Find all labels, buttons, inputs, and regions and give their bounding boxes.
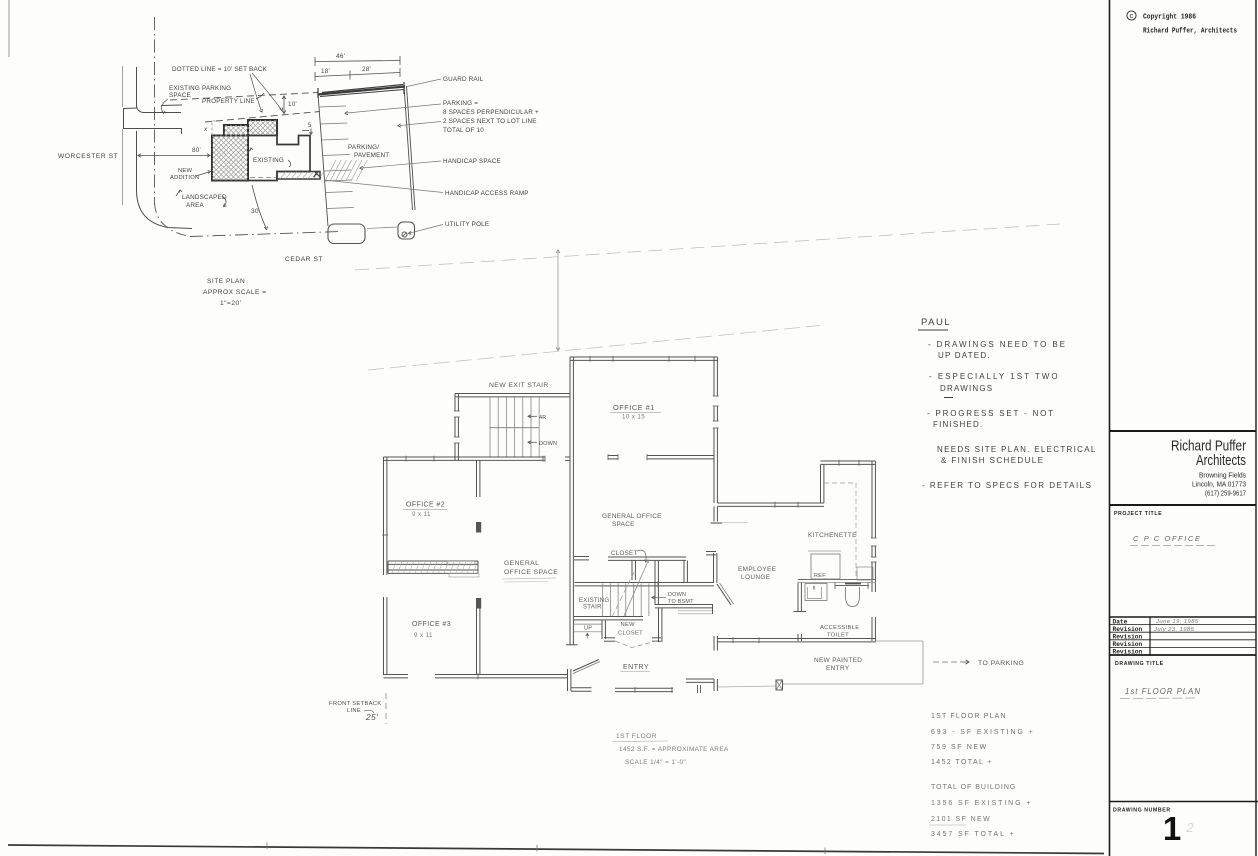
svg-text:c: c — [1129, 13, 1133, 21]
svg-text:2 SPACES NEXT TO LOT LINE: 2 SPACES NEXT TO LOT LINE — [443, 118, 537, 125]
svg-text:1"=20': 1"=20' — [220, 300, 241, 307]
svg-text:1: 1 — [1163, 810, 1181, 847]
svg-text:- REFER TO SPECS FOR DETAILS: - REFER TO SPECS FOR DETAILS — [922, 481, 1092, 490]
svg-text:June 19, 1985: June 19, 1985 — [1155, 619, 1199, 625]
svg-text:693 - SF EXISTING +: 693 - SF EXISTING + — [931, 729, 1035, 736]
svg-text:1ST FLOOR PLAN: 1ST FLOOR PLAN — [931, 713, 1007, 720]
svg-text:UTILITY POLE: UTILITY POLE — [445, 221, 489, 228]
svg-text:1452 S.F. = APPROXIMATE AREA: 1452 S.F. = APPROXIMATE AREA — [619, 746, 729, 753]
svg-text:July 23, 1985: July 23, 1985 — [1153, 627, 1195, 633]
svg-text:ENTRY: ENTRY — [623, 664, 649, 671]
svg-text:759 SF NEW: 759 SF NEW — [931, 744, 988, 751]
svg-text:APPROX SCALE =: APPROX SCALE = — [203, 289, 267, 296]
svg-text:Revision: Revision — [1113, 626, 1143, 633]
svg-text:1ST FLOOR: 1ST FLOOR — [616, 733, 657, 740]
svg-text:TOILET: TOILET — [827, 633, 849, 639]
svg-text:NEW EXIT STAIR: NEW EXIT STAIR — [489, 382, 549, 389]
svg-text:UP: UP — [584, 626, 592, 632]
svg-text:3457 SF TOTAL +: 3457 SF TOTAL + — [931, 831, 1015, 838]
svg-text:HANDICAP SPACE: HANDICAP SPACE — [443, 158, 501, 165]
svg-text:- DRAWINGS NEED TO BE: - DRAWINGS NEED TO BE — [928, 340, 1067, 349]
svg-text:46': 46' — [336, 53, 345, 60]
svg-text:PARKING =: PARKING = — [443, 100, 478, 107]
svg-text:UP DATED.: UP DATED. — [938, 351, 991, 360]
svg-text:25': 25' — [365, 712, 378, 722]
svg-text:EXISTING: EXISTING — [579, 598, 609, 604]
svg-text:OFFICE #2: OFFICE #2 — [406, 502, 445, 509]
svg-text:CLOSET: CLOSET — [618, 631, 643, 637]
svg-text:Richard Puffer, Architects: Richard Puffer, Architects — [1143, 28, 1237, 36]
svg-text:FRONT SETBACK: FRONT SETBACK — [329, 701, 381, 707]
svg-text:(617) 259-9617: (617) 259-9617 — [1205, 489, 1246, 498]
svg-text:OFFICE #1: OFFICE #1 — [613, 403, 655, 412]
svg-text:AREA: AREA — [186, 202, 205, 209]
svg-text:TOTAL OF 10: TOTAL OF 10 — [443, 127, 484, 134]
svg-text:TOTAL OF BUILDING: TOTAL OF BUILDING — [931, 784, 1016, 791]
svg-text:- PROGRESS SET - NOT: - PROGRESS SET - NOT — [927, 409, 1055, 418]
svg-text:SPACE: SPACE — [612, 521, 635, 528]
svg-text:9 x 11: 9 x 11 — [414, 632, 433, 639]
svg-text:DOWN: DOWN — [668, 592, 686, 598]
svg-text:EXISTING: EXISTING — [253, 157, 284, 164]
svg-text:18': 18' — [321, 68, 330, 75]
svg-text:9 x 11: 9 x 11 — [412, 511, 431, 518]
svg-text:Browning Fields: Browning Fields — [1199, 471, 1246, 480]
svg-text:& FINISH SCHEDULE: & FINISH SCHEDULE — [941, 456, 1044, 465]
svg-text:TO PARKING: TO PARKING — [978, 660, 1024, 667]
svg-text:2101 SF NEW: 2101 SF NEW — [931, 816, 991, 823]
svg-text:REF: REF — [814, 573, 826, 579]
svg-text:ADDITION: ADDITION — [170, 175, 199, 181]
svg-text:PROPERTY LINE: PROPERTY LINE — [202, 98, 255, 105]
svg-text:Revision: Revision — [1113, 634, 1143, 641]
svg-text:30: 30 — [251, 208, 259, 215]
svg-text:DOTTED LINE = 10' SET BACK: DOTTED LINE = 10' SET BACK — [172, 66, 268, 73]
svg-text:DRAWING TITLE: DRAWING TITLE — [1115, 661, 1164, 667]
svg-text:Date: Date — [1113, 618, 1128, 625]
svg-text:EXISTING PARKING: EXISTING PARKING — [169, 85, 231, 92]
svg-text:Architects: Architects — [1196, 452, 1246, 469]
svg-text:CEDAR ST: CEDAR ST — [285, 256, 323, 263]
svg-text:ACCESSIBLE: ACCESSIBLE — [820, 625, 859, 631]
svg-text:C P C OFFICE: C P C OFFICE — [1133, 534, 1202, 543]
svg-text:PROJECT TITLE: PROJECT TITLE — [1114, 511, 1162, 517]
svg-text:OFFICE SPACE: OFFICE SPACE — [504, 569, 558, 576]
svg-text:GENERAL: GENERAL — [504, 560, 539, 567]
svg-text:SPACE: SPACE — [169, 92, 191, 99]
svg-text:NEEDS SITE PLAN. ELECTRICAL: NEEDS SITE PLAN. ELECTRICAL — [937, 445, 1097, 454]
svg-text:LINE: LINE — [347, 708, 361, 714]
svg-text:EMPLOYEE: EMPLOYEE — [738, 566, 776, 573]
svg-text:NEW: NEW — [178, 168, 192, 174]
svg-text:10 x 15: 10 x 15 — [622, 414, 645, 421]
svg-text:HANDICAP ACCESS RAMP: HANDICAP ACCESS RAMP — [445, 190, 529, 197]
svg-text:Copyright 1986: Copyright 1986 — [1143, 14, 1196, 22]
svg-text:KITCHENETTE: KITCHENETTE — [808, 532, 857, 539]
svg-text:FINISHED.: FINISHED. — [933, 420, 983, 429]
svg-text:LOUNGE: LOUNGE — [741, 574, 770, 581]
svg-text:80': 80' — [192, 147, 201, 154]
svg-text:Lincoln, MA 01773: Lincoln, MA 01773 — [1192, 480, 1246, 489]
svg-text:Revision: Revision — [1113, 641, 1143, 648]
svg-text:1st FLOOR PLAN: 1st FLOOR PLAN — [1125, 687, 1201, 696]
svg-text:Revision: Revision — [1113, 649, 1143, 656]
svg-text:1356 SF EXISTING +: 1356 SF EXISTING + — [931, 800, 1032, 807]
svg-text:OFFICE #3: OFFICE #3 — [412, 621, 451, 628]
svg-text:GUARD RAIL: GUARD RAIL — [443, 76, 484, 83]
svg-text:DRAWINGS: DRAWINGS — [940, 384, 993, 393]
svg-text:TO BSMT: TO BSMT — [668, 599, 694, 605]
svg-text:DOWN: DOWN — [539, 441, 557, 447]
svg-text:10': 10' — [288, 101, 297, 108]
svg-text:PARKING/: PARKING/ — [348, 144, 379, 151]
svg-text:SITE PLAN: SITE PLAN — [207, 278, 245, 285]
svg-text:1452 TOTAL +: 1452 TOTAL + — [931, 759, 993, 766]
svg-text:5: 5 — [308, 123, 312, 129]
svg-text:WORCESTER ST: WORCESTER ST — [58, 153, 118, 160]
svg-text:ENTRY: ENTRY — [826, 665, 850, 672]
svg-text:STAIR: STAIR — [583, 605, 602, 611]
svg-text:28': 28' — [362, 66, 371, 73]
svg-text:NEW PAINTED: NEW PAINTED — [814, 657, 862, 664]
svg-text:CLOSET: CLOSET — [611, 550, 638, 557]
svg-text:SCALE 1/4" = 1'-0": SCALE 1/4" = 1'-0" — [625, 759, 686, 766]
svg-text:- ESPECIALLY 1ST TWO: - ESPECIALLY 1ST TWO — [929, 372, 1060, 381]
svg-text:LANDSCAPED: LANDSCAPED — [182, 194, 227, 201]
svg-text:NEW: NEW — [621, 622, 636, 628]
svg-text:8 SPACES PERPENDICULAR +: 8 SPACES PERPENDICULAR + — [443, 109, 539, 116]
svg-text:PAVEMENT: PAVEMENT — [354, 152, 389, 159]
svg-text:2: 2 — [1185, 820, 1194, 835]
svg-text:GENERAL OFFICE: GENERAL OFFICE — [602, 513, 662, 520]
svg-text:4R: 4R — [539, 415, 546, 421]
svg-text:PAUL: PAUL — [921, 317, 951, 328]
